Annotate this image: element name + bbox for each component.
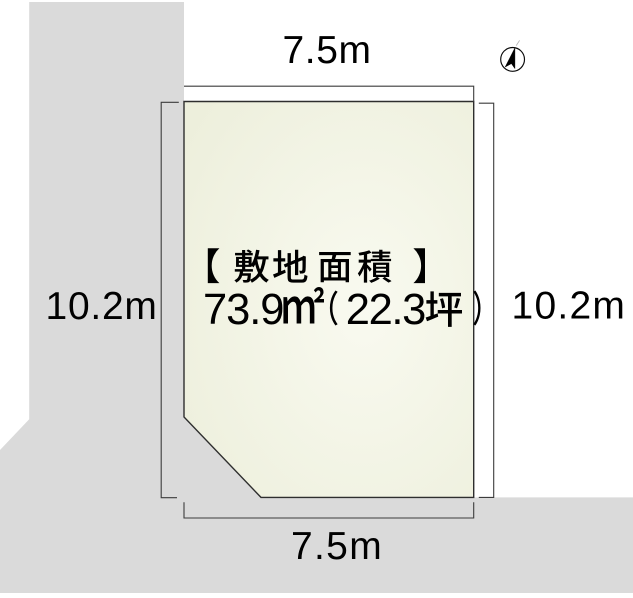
svg-text:73.9: 73.9 [203, 286, 285, 334]
svg-text:22.3: 22.3 [346, 286, 427, 334]
svg-text:7.5m: 7.5m [283, 29, 372, 72]
svg-text:10.2m: 10.2m [512, 285, 625, 328]
svg-text:10.2m: 10.2m [46, 285, 157, 328]
svg-text:7.5m: 7.5m [291, 525, 382, 568]
